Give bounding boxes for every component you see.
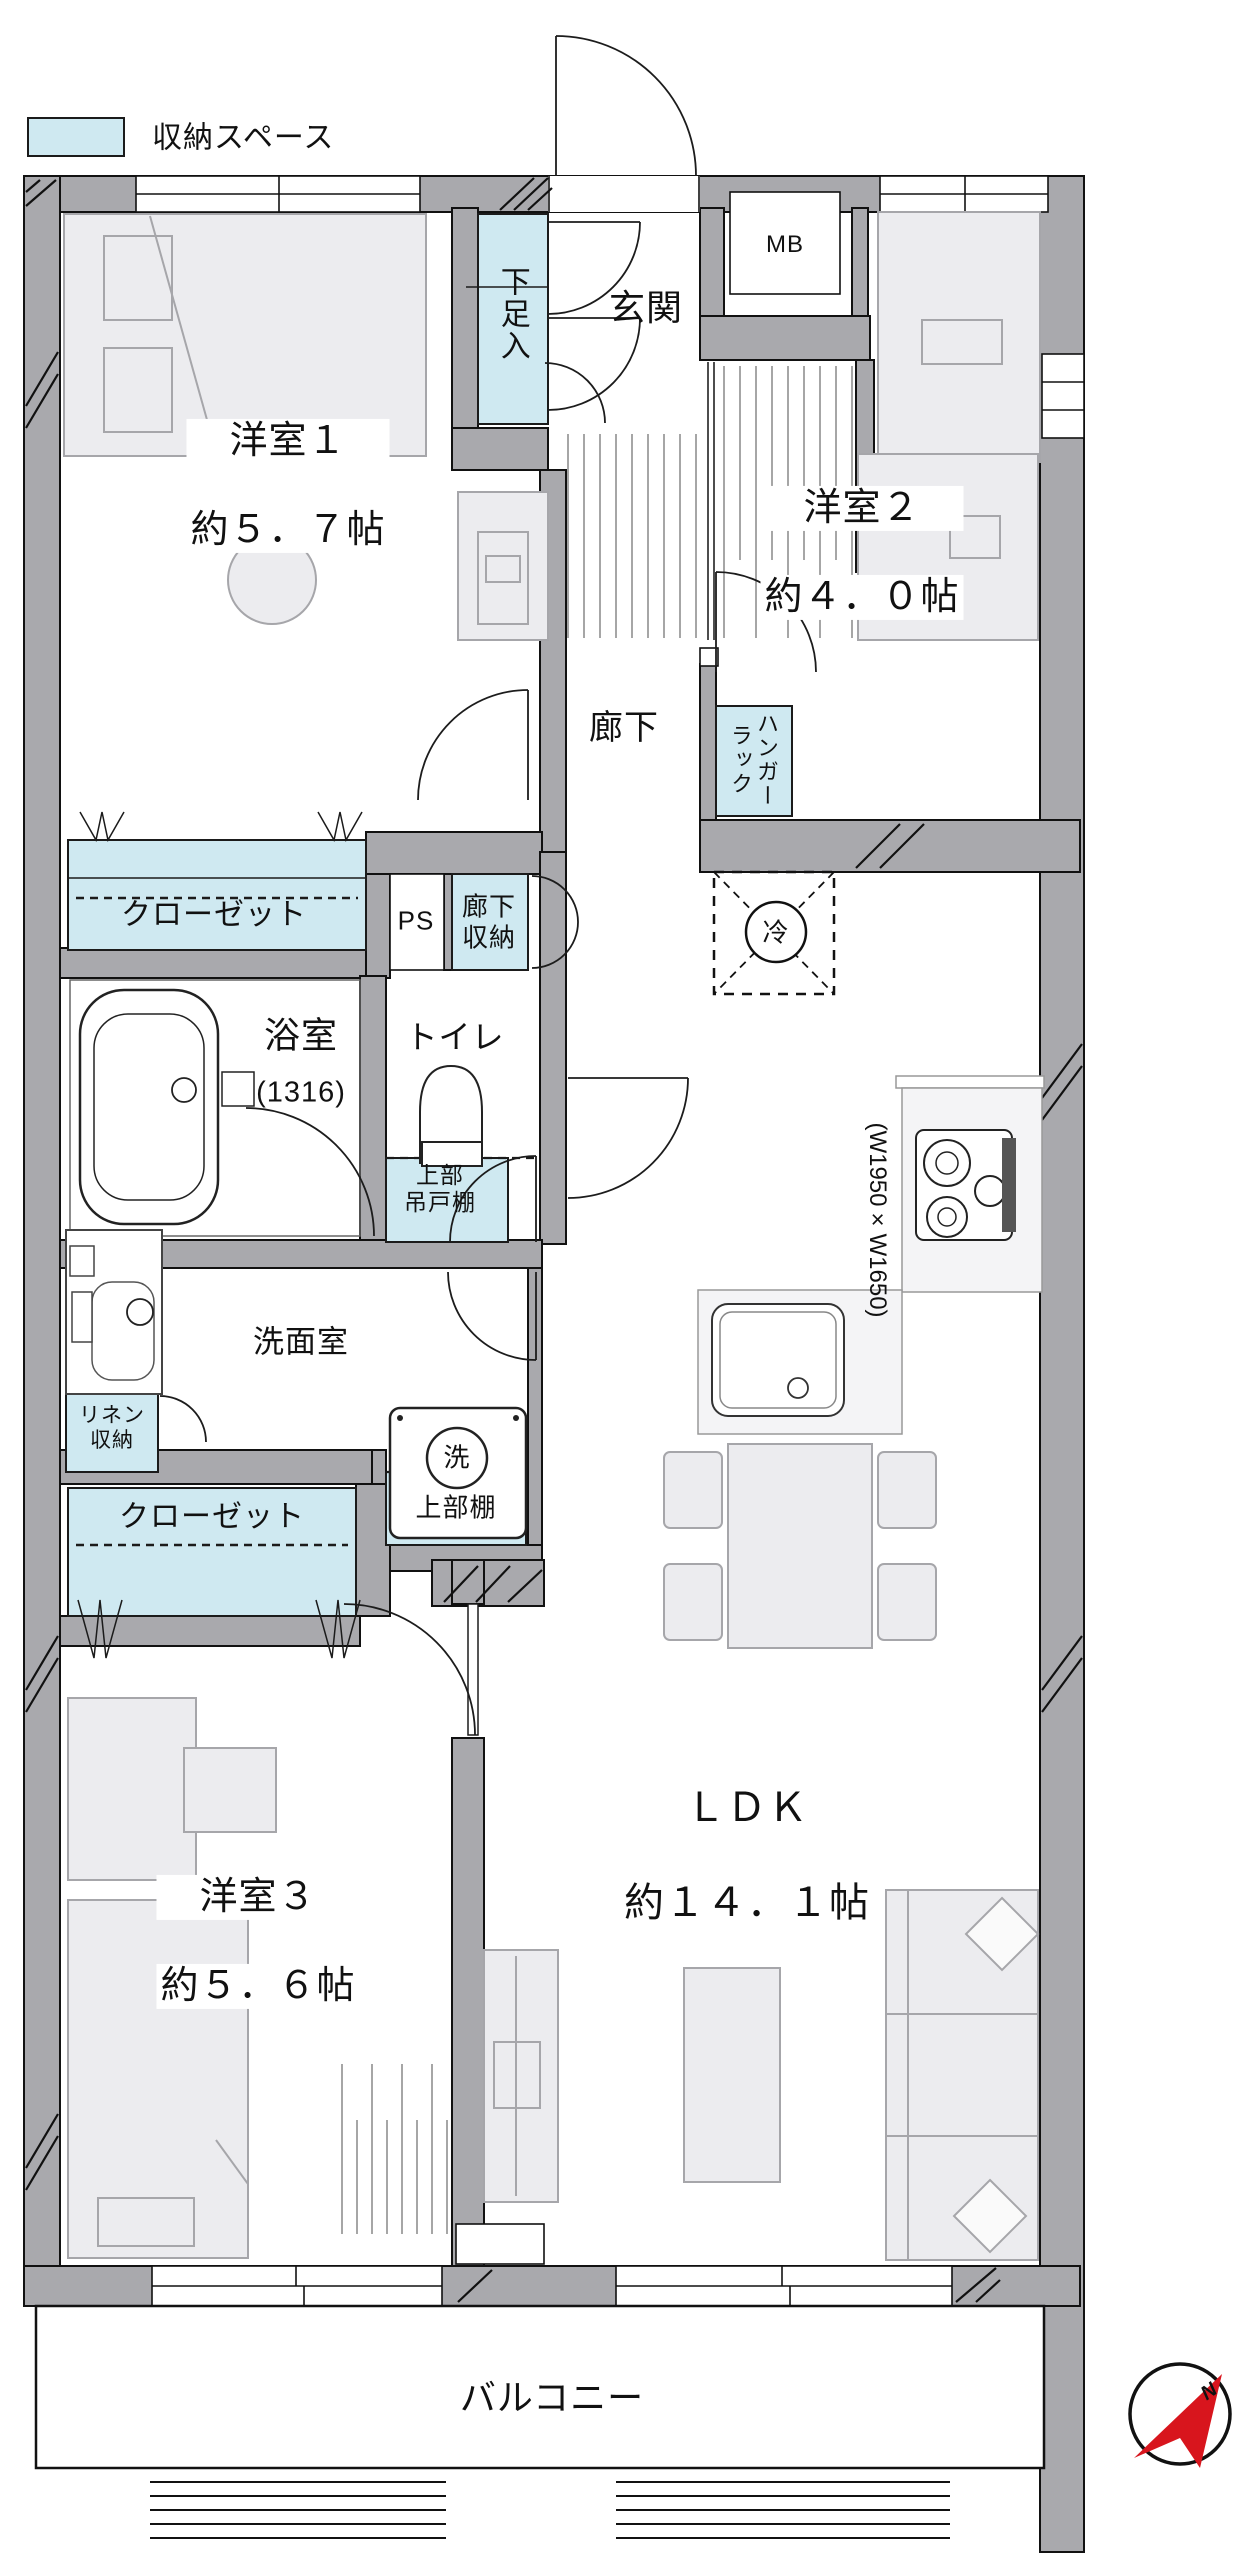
room2-size: 約４．０帖	[760, 575, 963, 620]
washroom-label: 洗面室	[253, 1325, 349, 1362]
room2-label: 洋室２ 約４．０帖	[760, 441, 963, 665]
compass	[1130, 2364, 1230, 2468]
floor-plan: 収納スペース 洋室１ 約５．７帖 洋室２ 約４．０帖 洋室３ 約５．６帖 ＬＤＫ…	[0, 0, 1236, 2560]
sink	[712, 1304, 844, 1416]
hallway-label: 廊下	[589, 708, 659, 748]
bathroom-size: (1316)	[256, 1076, 346, 1110]
shoe-cabinet-label: 下足入	[494, 266, 529, 362]
balcony-railing	[150, 2482, 950, 2538]
dining-chair	[878, 1452, 936, 1528]
balcony-label: バルコニー	[460, 2377, 644, 2419]
balcony-structure	[36, 2306, 1044, 2538]
bathroom-name: 浴室	[256, 1014, 346, 1056]
dining-chair	[878, 1564, 936, 1640]
washing-machine-label: 洗	[443, 1443, 470, 1474]
room2-name: 洋室２	[760, 486, 963, 531]
room1-label: 洋室１ 約５．７帖	[186, 374, 389, 598]
closet1-label: クローゼット	[121, 897, 307, 932]
entrance-door-arc	[556, 36, 696, 176]
bathroom-label: 浴室 (1316)	[256, 995, 346, 1128]
room1-door-arc	[418, 690, 528, 800]
room3-door-arc	[344, 1604, 475, 1735]
bathtub	[80, 990, 218, 1224]
washroom-door-arc	[448, 1272, 536, 1360]
kitchen-dimensions-label: (W1950×W1650)	[863, 1122, 891, 1317]
toilet-label: トイレ	[405, 1019, 504, 1057]
coffee-table	[684, 1968, 780, 2182]
dining-chair	[664, 1564, 722, 1640]
linen-storage-label: リネン 収納	[79, 1404, 145, 1454]
dining-chair	[664, 1452, 722, 1528]
upper-shelf-label: 上部棚	[415, 1493, 496, 1524]
pipe-space-label: PS	[398, 906, 435, 937]
hallway-storage-label: 廊下 収納	[462, 891, 516, 952]
room3-label: 洋室３ 約５．６帖	[156, 1830, 359, 2054]
closet2-label: クローゼット	[119, 1499, 305, 1534]
ldk-label: ＬＤＫ 約１４．１帖	[620, 1738, 874, 1974]
ldk-door-arc	[568, 1078, 688, 1198]
room1-size: 約５．７帖	[186, 508, 389, 553]
entrance-label: 玄関	[609, 287, 683, 329]
chair-room3	[184, 1748, 276, 1832]
grill	[1002, 1138, 1016, 1232]
closet1-zone	[68, 840, 366, 950]
room1-name: 洋室１	[186, 419, 389, 464]
floorplan-drawing	[0, 0, 1236, 2560]
room3-size: 約５．６帖	[156, 1964, 359, 2009]
meter-box-label: MB	[766, 231, 804, 259]
ldk-size: 約１４．１帖	[620, 1880, 874, 1927]
hanger-rack-label: ハンガー ラック	[727, 712, 779, 808]
legend-label: 収納スペース	[152, 120, 334, 155]
legend-swatch	[28, 118, 124, 156]
ldk-name: ＬＤＫ	[620, 1785, 874, 1832]
room3-name: 洋室３	[156, 1875, 359, 1920]
dining-table	[728, 1444, 872, 1648]
refrigerator-label: 冷	[762, 918, 789, 949]
upper-hanging-cabinet-label: 上部 吊戸棚	[404, 1162, 476, 1216]
